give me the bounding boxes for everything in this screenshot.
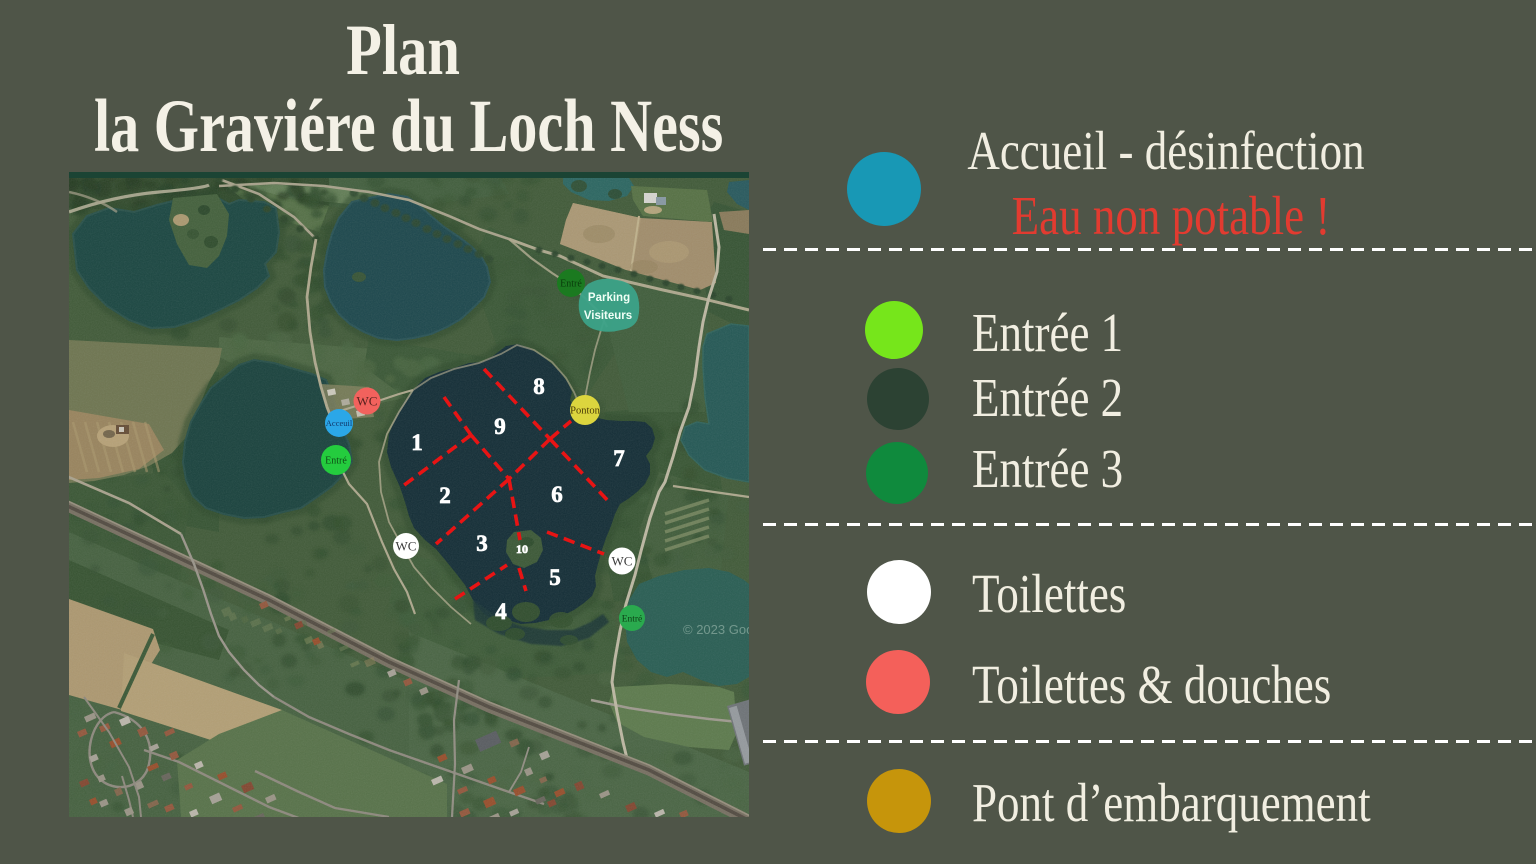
- svg-text:Entré: Entré: [325, 456, 347, 467]
- svg-text:6: 6: [551, 482, 563, 507]
- svg-text:Ponton: Ponton: [570, 406, 601, 417]
- svg-text:Entré: Entré: [622, 614, 643, 624]
- svg-text:Visiteurs: Visiteurs: [584, 310, 632, 322]
- svg-text:© 2023 Goo: © 2023 Goo: [683, 622, 749, 637]
- svg-text:4: 4: [495, 599, 507, 624]
- svg-text:WC: WC: [357, 394, 378, 409]
- svg-text:Parking: Parking: [588, 292, 630, 304]
- svg-text:2: 2: [439, 483, 451, 508]
- svg-text:1: 1: [411, 430, 423, 455]
- svg-text:8: 8: [533, 374, 545, 399]
- svg-text:WC: WC: [612, 554, 633, 569]
- svg-text:3: 3: [476, 531, 488, 556]
- svg-text:Entré: Entré: [560, 279, 582, 290]
- svg-text:WC: WC: [396, 539, 417, 554]
- svg-text:Acceuil: Acceuil: [326, 418, 353, 428]
- svg-text:10: 10: [516, 542, 528, 556]
- svg-text:7: 7: [613, 446, 625, 471]
- svg-text:9: 9: [494, 414, 506, 439]
- svg-text:5: 5: [549, 565, 561, 590]
